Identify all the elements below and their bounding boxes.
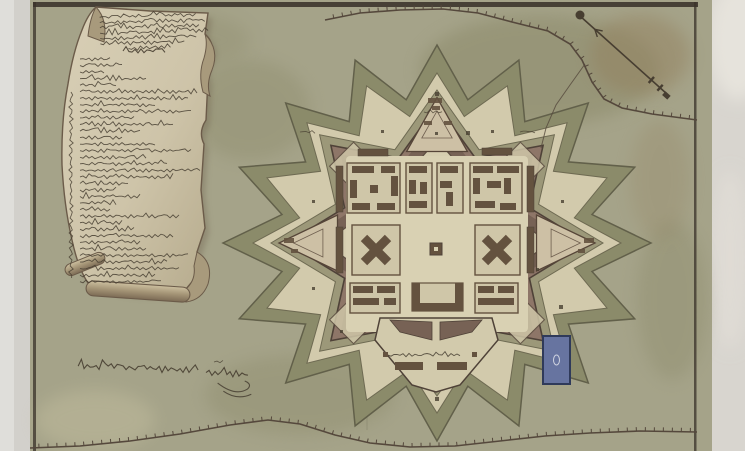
palisade-tick-south <box>217 423 218 427</box>
outwork-building <box>584 238 594 243</box>
paper-stain <box>630 120 690 240</box>
needle-knob <box>576 11 585 20</box>
building <box>446 192 453 206</box>
building <box>350 180 357 198</box>
barracks-building <box>358 149 388 156</box>
building <box>384 298 396 305</box>
water-basin <box>543 336 570 384</box>
building <box>500 203 516 210</box>
reference-numeral-mark <box>435 132 438 135</box>
barracks-building <box>527 227 534 273</box>
frame-left <box>33 2 36 451</box>
palisade-tick-south <box>271 416 272 420</box>
photo-left-highlight <box>0 0 14 451</box>
outwork-building <box>424 121 432 125</box>
building <box>473 166 493 173</box>
building <box>353 298 379 305</box>
palisade-tick-south <box>137 436 138 440</box>
palisade-tick-south <box>226 422 227 426</box>
outwork-building <box>291 249 298 253</box>
building <box>478 298 514 305</box>
building <box>440 166 458 173</box>
building <box>498 286 514 293</box>
building <box>377 286 395 293</box>
frame-right <box>694 2 697 451</box>
building <box>353 286 373 293</box>
palisade-tick-south <box>164 432 165 436</box>
palisade-tick-south <box>182 430 183 434</box>
building <box>478 286 494 293</box>
palisade-tick-south <box>146 435 147 439</box>
building <box>475 201 495 208</box>
palisade-tick-south <box>528 434 529 438</box>
barracks-building <box>482 148 512 155</box>
frame-top <box>33 2 698 7</box>
building <box>377 203 395 210</box>
building <box>391 176 398 196</box>
palisade-tick-south <box>483 439 484 443</box>
paper-stain <box>590 15 690 95</box>
palisade-tick-south <box>190 428 191 432</box>
palisade-tick-south <box>155 434 156 438</box>
palisade-tick-south <box>244 419 245 423</box>
citadel-post <box>472 352 477 357</box>
reference-numeral-mark <box>312 287 315 290</box>
reference-numeral-mark <box>466 131 470 135</box>
fortress-map-scene <box>0 0 745 451</box>
outwork-building <box>432 106 440 110</box>
reference-numeral-mark <box>435 397 439 401</box>
building <box>440 181 452 188</box>
paper-stain <box>35 390 155 450</box>
citadel-building <box>395 362 423 370</box>
palisade-tick-north <box>468 8 469 12</box>
outwork-building <box>578 249 585 253</box>
palisade-tick-south <box>298 420 299 424</box>
legend-cartouche-scroll <box>62 7 216 303</box>
citadel-post <box>383 352 388 357</box>
outwork-building <box>444 121 452 125</box>
building <box>409 201 427 208</box>
outwork-building <box>284 238 294 243</box>
building <box>381 166 395 173</box>
palisade-tick-south <box>173 431 174 435</box>
barracks-building <box>336 166 343 212</box>
palisade-tick-south <box>235 420 236 424</box>
reference-numeral-mark <box>561 200 564 203</box>
palisade-tick-north <box>636 107 637 111</box>
citadel-building <box>437 362 467 370</box>
reference-numeral-mark <box>491 130 494 133</box>
palisade-tick-south <box>262 417 263 421</box>
palisade-tick-north <box>689 115 690 119</box>
building <box>497 166 519 173</box>
palisade-tick-north <box>680 114 681 118</box>
palisade-tick-north <box>671 113 672 117</box>
building <box>370 185 378 193</box>
palisade-tick-north <box>662 111 663 115</box>
palisade-tick-south <box>199 427 200 431</box>
building <box>420 182 427 194</box>
palisade-tick-south <box>501 437 502 441</box>
reference-numeral-mark <box>559 305 563 309</box>
palisade-tick-south <box>253 418 254 422</box>
building <box>504 178 511 194</box>
palisade-tick-north <box>450 6 451 10</box>
reference-numeral-mark <box>340 330 343 333</box>
barracks-building <box>527 166 534 212</box>
photo-of-historical-fortress-plan <box>0 0 745 451</box>
building <box>409 180 416 194</box>
reference-numeral-mark <box>435 92 439 96</box>
outwork-building <box>428 98 442 103</box>
barracks-building <box>336 227 343 273</box>
building <box>352 203 370 210</box>
central-plaza-court <box>434 247 438 251</box>
reference-numeral-mark <box>536 268 539 271</box>
palisade-tick-north <box>653 110 654 114</box>
reference-numeral-mark <box>312 200 315 203</box>
reference-numeral-mark <box>381 130 384 133</box>
building <box>487 181 501 188</box>
palisade-tick-south <box>280 418 281 422</box>
palisade-tick-south <box>289 419 290 423</box>
building <box>352 166 374 173</box>
palisade-tick-south <box>466 441 467 445</box>
building <box>409 166 427 173</box>
palisade-tick-south <box>208 425 209 429</box>
building <box>473 178 480 194</box>
